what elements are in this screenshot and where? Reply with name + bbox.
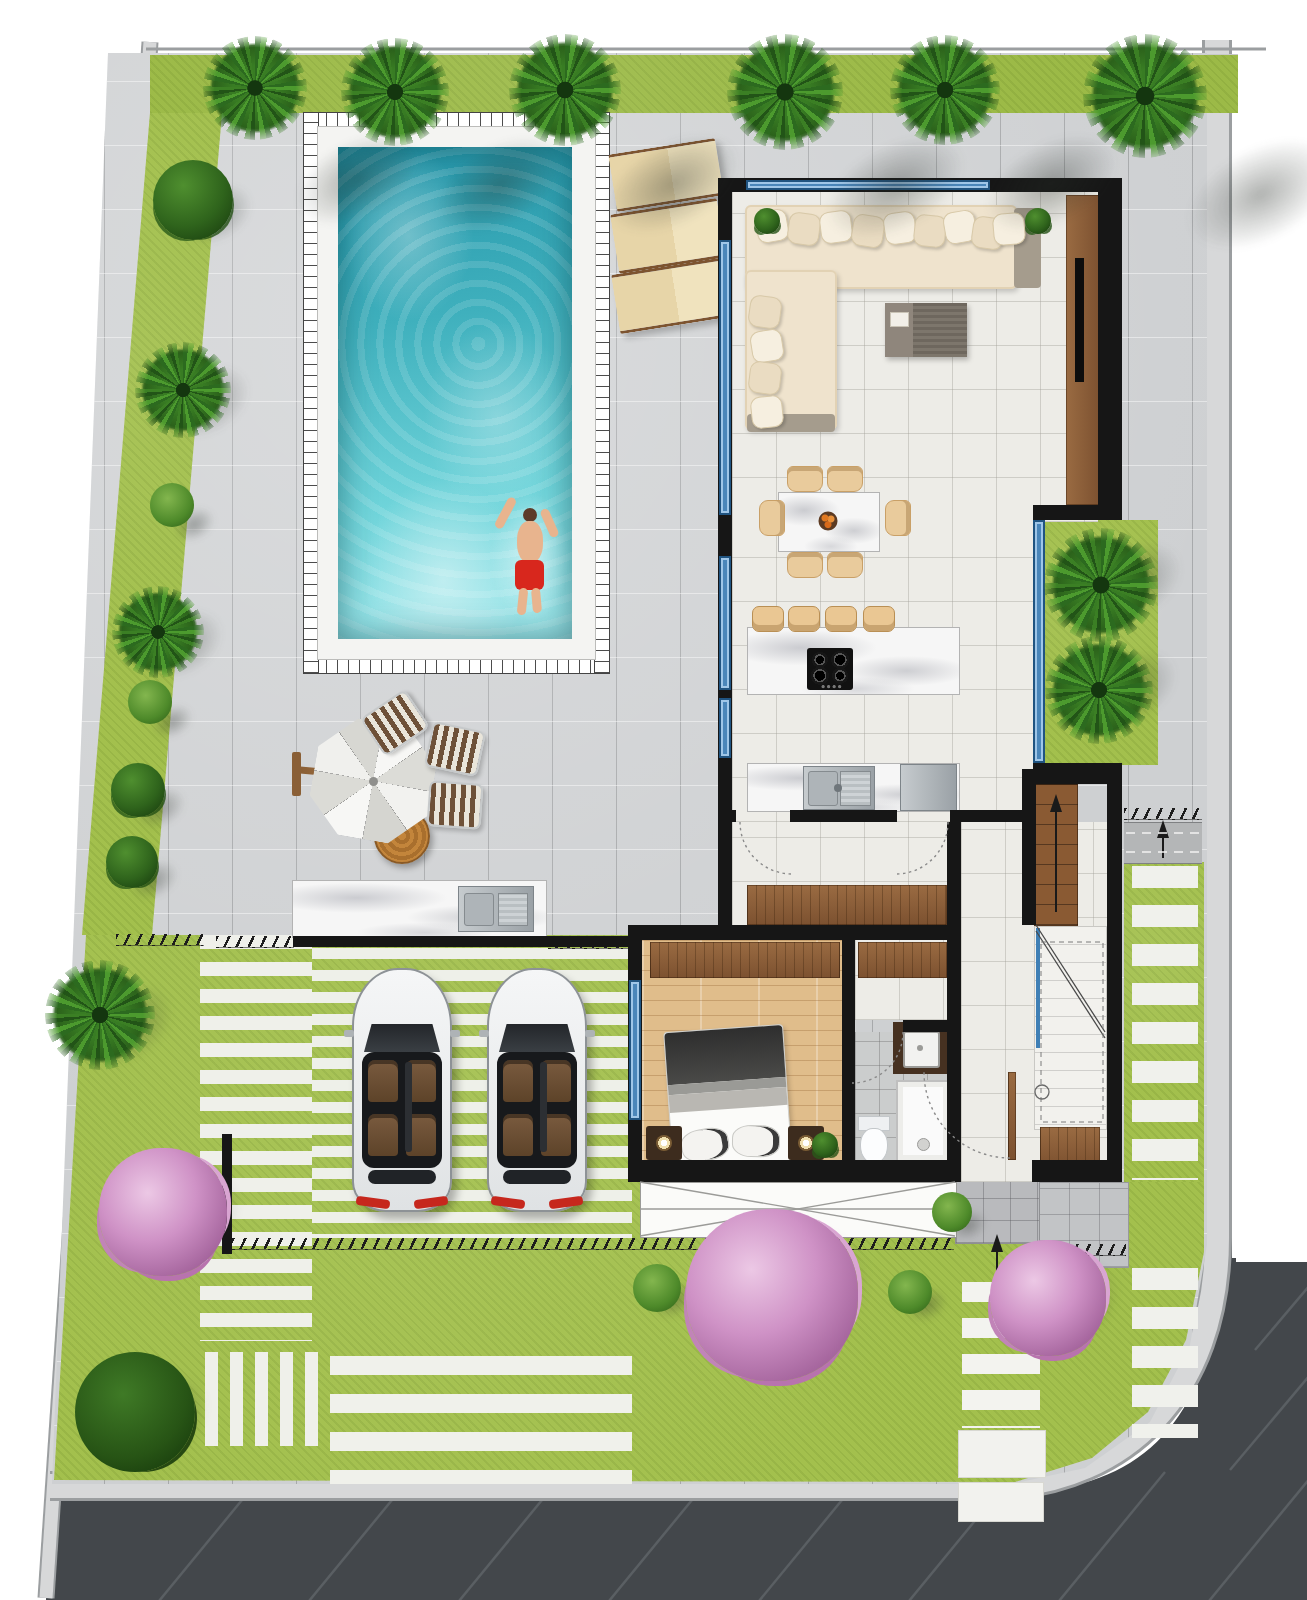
site-plan bbox=[0, 0, 1307, 1600]
potted-plant bbox=[1025, 208, 1051, 234]
potted-plant bbox=[812, 1132, 838, 1158]
stair-newel-circle bbox=[1035, 1085, 1049, 1099]
blossom-tree bbox=[99, 1148, 227, 1276]
patio-tree bbox=[1044, 528, 1158, 642]
round-shrub bbox=[932, 1192, 972, 1232]
palm-tree bbox=[135, 342, 231, 438]
palm-tree bbox=[45, 960, 155, 1070]
palm-tree bbox=[1083, 34, 1207, 158]
palm-tree bbox=[112, 586, 204, 678]
dark-bush bbox=[153, 160, 233, 240]
blossom-tree bbox=[990, 1240, 1106, 1356]
round-shrub bbox=[888, 1270, 932, 1314]
round-shrub bbox=[150, 483, 194, 527]
dark-bush bbox=[106, 836, 158, 888]
round-shrub bbox=[633, 1264, 681, 1312]
patio-tree bbox=[1045, 636, 1153, 744]
door-swing-arcs bbox=[740, 822, 1010, 1158]
round-shrub bbox=[128, 680, 172, 724]
dark-bush bbox=[111, 763, 165, 817]
blossom-tree bbox=[686, 1209, 858, 1381]
potted-plant bbox=[754, 208, 780, 234]
stair-direction-arrow bbox=[1050, 794, 1062, 912]
palm-tree bbox=[727, 34, 843, 150]
palm-tree bbox=[341, 38, 449, 146]
palm-tree bbox=[509, 34, 621, 146]
stair-landing-dashed bbox=[1041, 942, 1103, 1122]
palm-tree bbox=[890, 35, 1000, 145]
palm-tree bbox=[203, 36, 307, 140]
green-tree bbox=[75, 1352, 195, 1472]
